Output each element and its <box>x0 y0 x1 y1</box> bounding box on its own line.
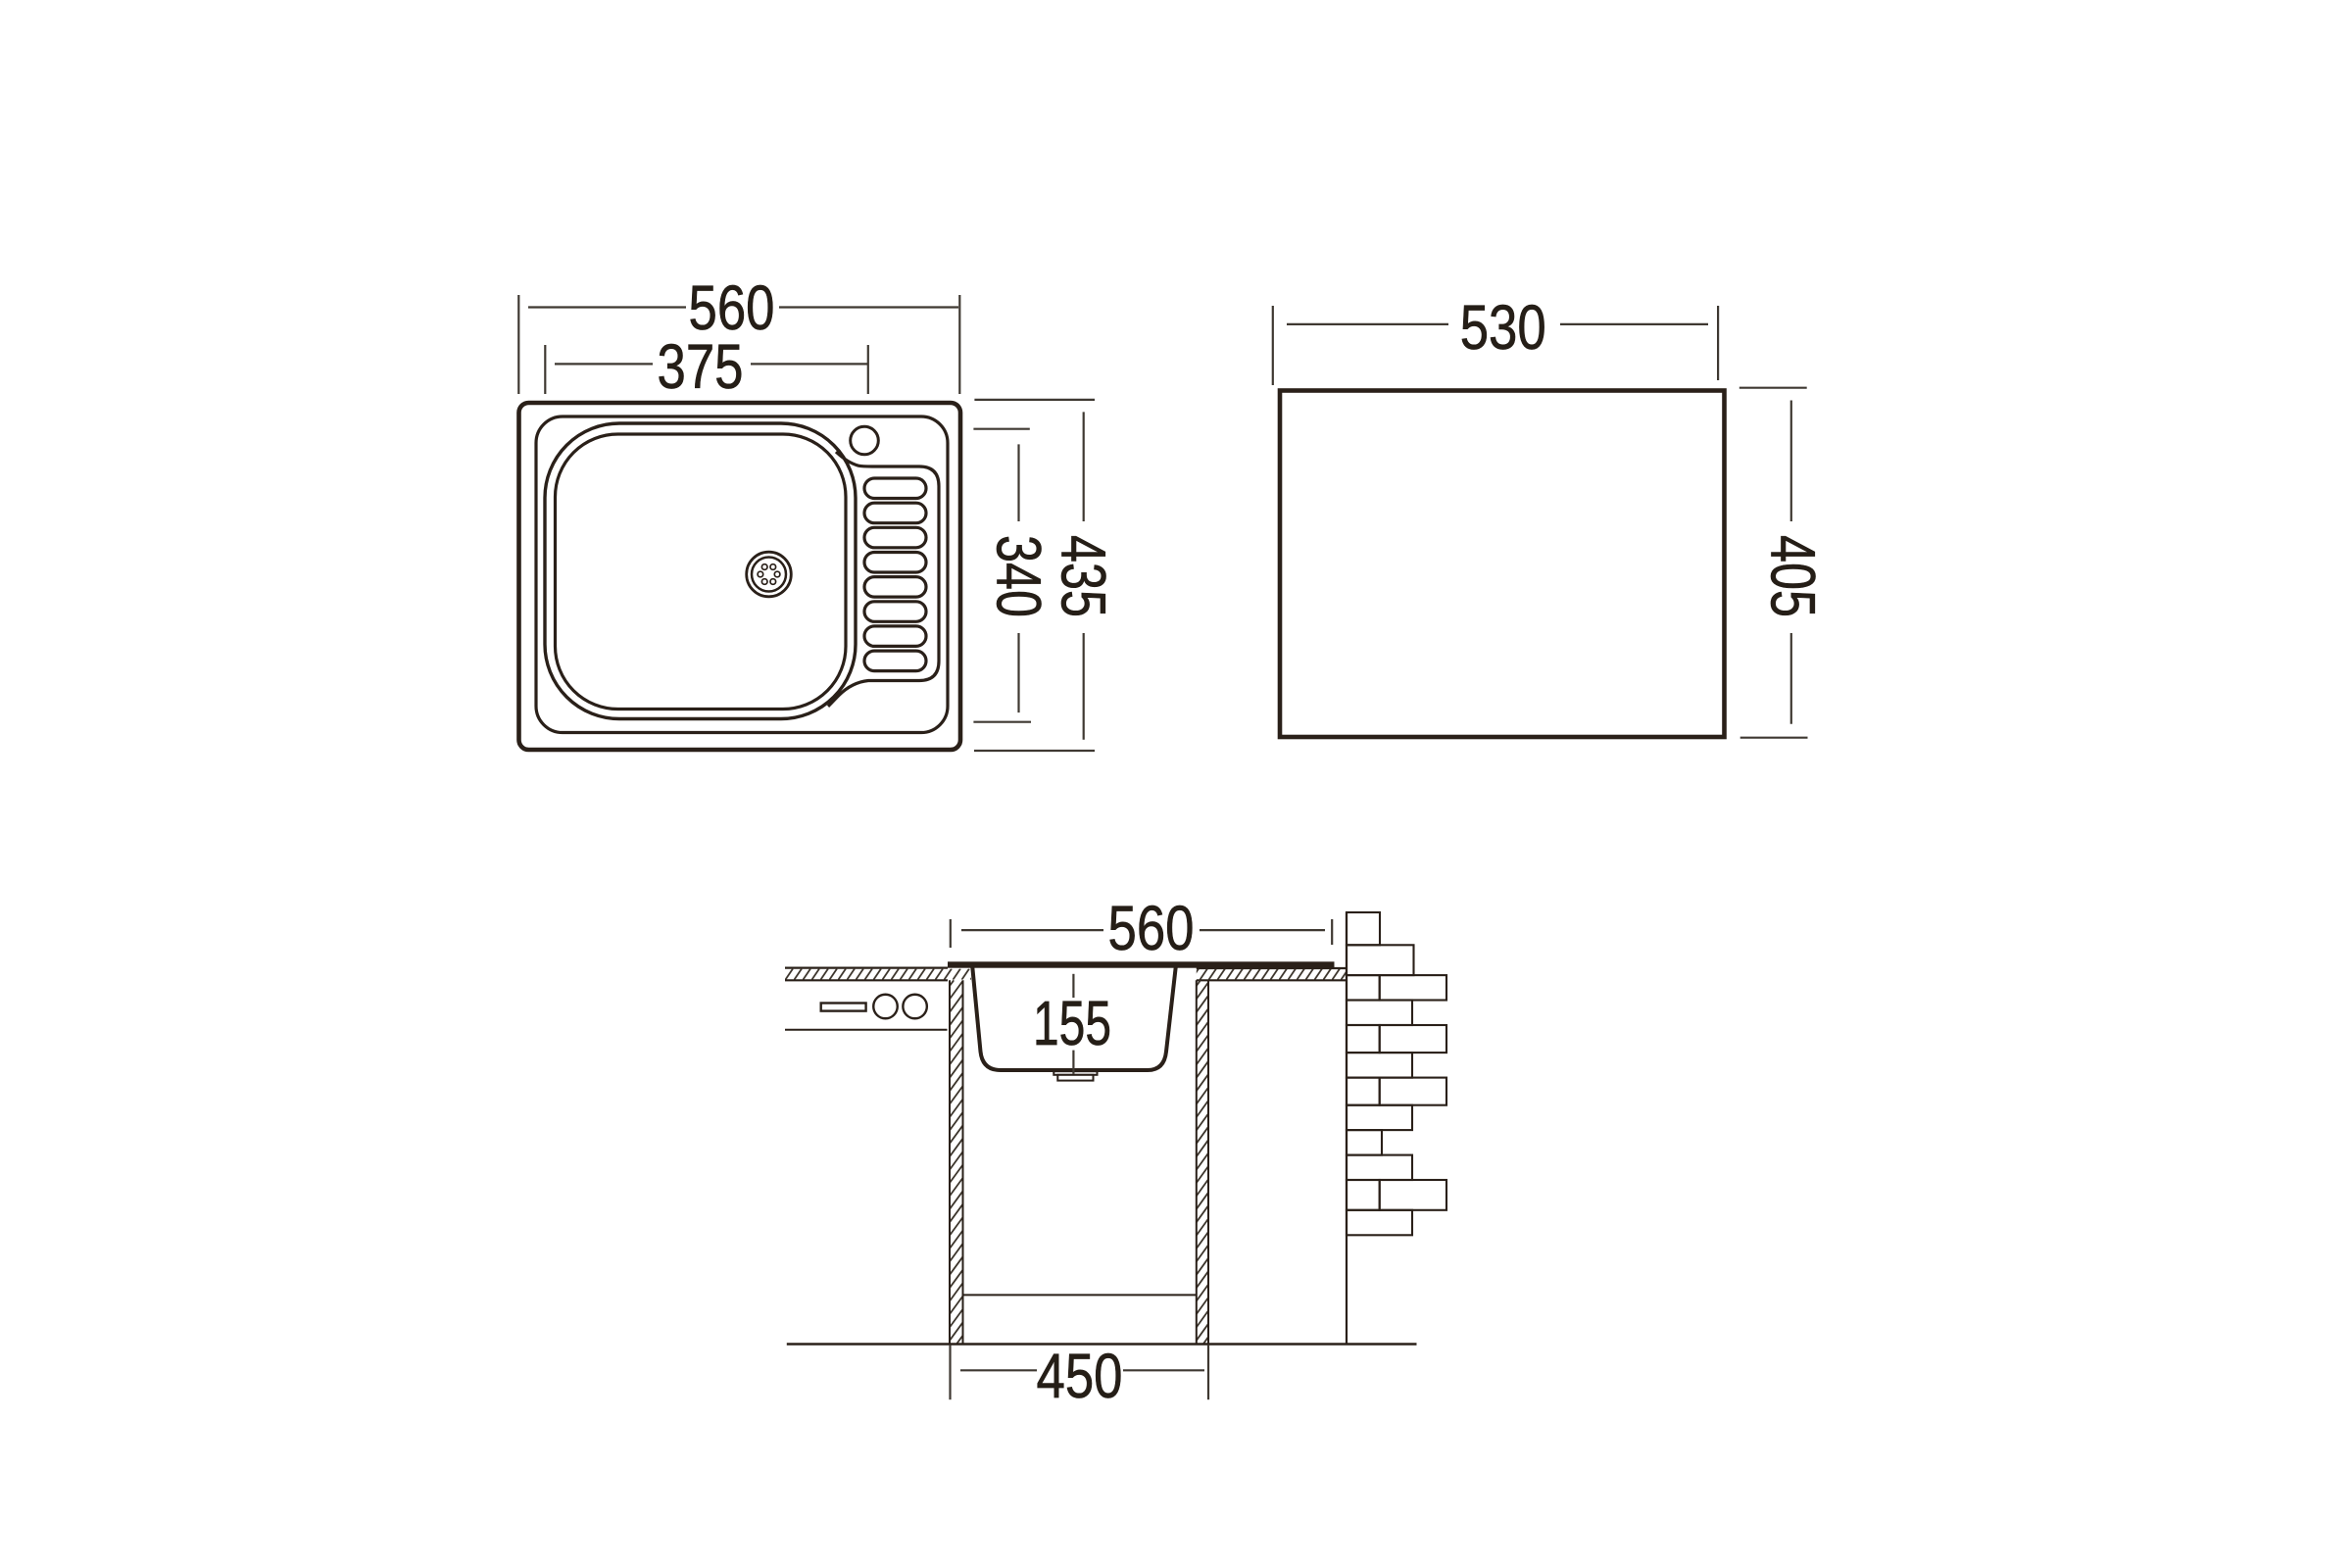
svg-text:560: 560 <box>1108 893 1195 963</box>
svg-text:375: 375 <box>658 331 744 402</box>
svg-text:435: 435 <box>1049 535 1119 617</box>
svg-text:340: 340 <box>984 535 1054 617</box>
svg-text:405: 405 <box>1758 535 1829 617</box>
svg-text:450: 450 <box>1037 1341 1123 1411</box>
svg-text:530: 530 <box>1460 292 1546 363</box>
svg-text:155: 155 <box>1033 988 1111 1058</box>
